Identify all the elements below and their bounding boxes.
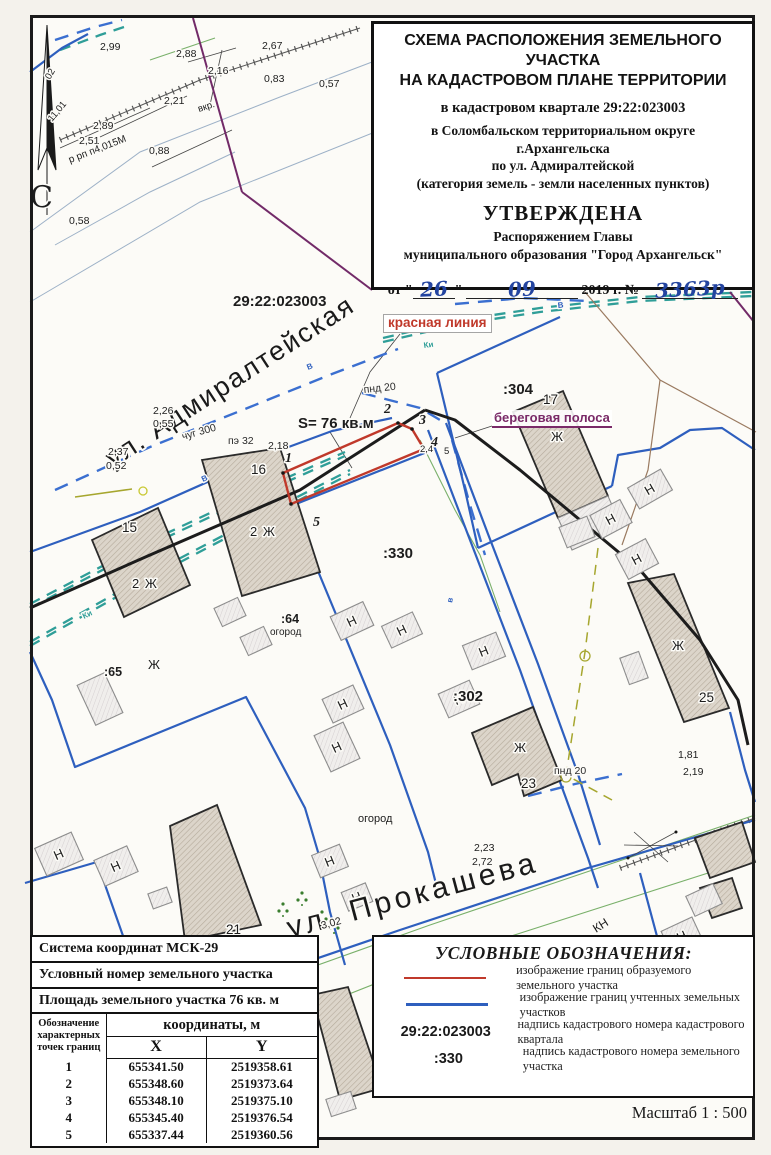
coordinate-cell: 1	[32, 1058, 106, 1075]
coordinate-cell: 5	[32, 1126, 106, 1143]
legend-title: УСЛОВНЫЕ ОБОЗНАЧЕНИЯ:	[374, 943, 753, 964]
coordinate-cell: 3	[32, 1092, 106, 1109]
map-label: 29:22:023003	[233, 293, 326, 310]
map-label: 2,21	[164, 95, 185, 107]
date-month-handwritten: 09	[508, 279, 537, 300]
map-label: 2,19	[683, 766, 704, 778]
map-label: С	[30, 180, 53, 215]
order-number-handwritten: 3363р	[655, 277, 726, 301]
city-line: г.Архангельска	[374, 140, 752, 158]
date-day-underline: 26	[413, 277, 455, 299]
date-quote: "	[455, 283, 463, 298]
map-label: :64	[281, 612, 299, 626]
boundary-point-3	[410, 427, 414, 431]
cadastral-scheme-page: НННННННННННННН С29:22:023003ул. Адмиралт…	[0, 0, 771, 1155]
map-label: В	[557, 300, 564, 310]
legend-item: изображение границ образуемого земельног…	[374, 964, 753, 991]
map-label: 2,99	[100, 41, 121, 53]
coords-column-header: координаты, м	[106, 1014, 317, 1036]
legend-items: изображение границ образуемого земельног…	[374, 964, 753, 1072]
map-label: Ж	[514, 740, 527, 755]
map-label: 2,72	[472, 856, 493, 868]
map-label: 15	[122, 520, 137, 535]
coordinate-cell: 2519376.54	[206, 1109, 317, 1126]
map-label: Ж	[148, 657, 161, 672]
map-label: 5	[313, 515, 320, 530]
points-column-header: Обозначение характерных точек границ	[32, 1014, 106, 1058]
map-label: пнд 20	[554, 765, 586, 777]
map-label: 2,23	[474, 842, 495, 854]
date-prefix: от "	[388, 283, 413, 298]
coordinate-row: 2655348.602519373.64	[32, 1075, 317, 1092]
map-label: 2 Ж	[250, 524, 276, 539]
map-label: 17	[543, 392, 558, 407]
coordinate-cell: 655348.60	[106, 1075, 206, 1092]
map-label: 16	[251, 462, 266, 477]
coordinates-table-block: Система координат МСК-29 Условный номер …	[30, 935, 319, 1148]
registered-parcel-line-sample	[406, 1003, 488, 1006]
map-label: огород	[358, 813, 393, 825]
map-label: 2,4	[420, 444, 433, 455]
map-label: Ж	[672, 638, 685, 653]
coordinate-row: 1655341.502519358.61	[32, 1058, 317, 1075]
map-label: S= 76 кв.м	[298, 415, 374, 432]
map-label: 0,58	[69, 215, 90, 227]
street-line: по ул. Адмиралтейской	[374, 157, 752, 175]
date-month-underline: 09	[466, 277, 578, 299]
map-label: 2,18	[268, 440, 289, 452]
date-day-handwritten: 26	[419, 279, 448, 300]
order-lines: Распоряжением Главы муниципального образ…	[374, 228, 752, 263]
order-line-2: муниципального образования "Город Арханг…	[374, 246, 752, 264]
land-category-line: (категория земель - земли населенных пун…	[374, 175, 752, 193]
coordinate-cell: 2519373.64	[206, 1075, 317, 1092]
cadastral-quarter-line: в кадастровом квартале 29:22:023003	[374, 100, 752, 117]
map-label: огород	[270, 627, 301, 638]
shore-strip-callout: береговая полоса	[492, 410, 612, 428]
conditional-number-row: Условный номер земельного участка	[32, 963, 317, 989]
map-label: 0,57	[319, 78, 340, 90]
y-column-header: Y	[206, 1036, 317, 1058]
title-line-2: НА КАДАСТРОВОМ ПЛАНЕ ТЕРРИТОРИИ	[374, 71, 752, 91]
map-label: 3	[418, 413, 426, 428]
legend-item-text: надпись кадастрового номера кадастрового…	[517, 1017, 753, 1047]
map-label: 1,81	[678, 749, 699, 761]
coordinate-cell: 655341.50	[106, 1058, 206, 1075]
boundary-point-5	[289, 502, 293, 506]
map-label: 0,52	[106, 460, 127, 472]
map-label: 0,83	[264, 73, 285, 85]
coordinate-cell: 2	[32, 1075, 106, 1092]
coordinate-cell: 2519360.56	[206, 1126, 317, 1143]
map-label: 2,37	[108, 446, 129, 458]
coordinates-table: Обозначение характерных точек границ коо…	[32, 1014, 317, 1143]
map-label: :302	[453, 688, 483, 705]
map-label: 0,55	[153, 418, 174, 430]
legend-sample	[374, 1003, 520, 1006]
scale-label: Масштаб 1 : 500	[555, 1103, 747, 1123]
map-label: :330	[383, 545, 413, 562]
map-label: 0,88	[149, 145, 170, 157]
boundary-point-1	[281, 471, 285, 475]
map-label: 2,26	[153, 405, 174, 417]
legend-sample	[374, 977, 516, 979]
legend-block: УСЛОВНЫЕ ОБОЗНАЧЕНИЯ: изображение границ…	[372, 935, 755, 1098]
legend-sample: :330	[374, 1051, 523, 1067]
coordinate-row: 5655337.442519360.56	[32, 1126, 317, 1143]
order-line-1: Распоряжением Главы	[374, 228, 752, 246]
coordinate-cell: 655337.44	[106, 1126, 206, 1143]
legend-item-text: изображение границ учтенных земельных уч…	[520, 990, 753, 1020]
map-label: 5	[444, 446, 449, 457]
area-row: Площадь земельного участка 76 кв. м	[32, 989, 317, 1015]
title-block: СХЕМА РАСПОЛОЖЕНИЯ ЗЕМЕЛЬНОГО УЧАСТКА НА…	[371, 21, 755, 290]
legend-item-text: надпись кадастрового номера земельного у…	[523, 1044, 753, 1074]
map-label: :65	[104, 665, 122, 679]
map-label: Ки	[423, 340, 434, 350]
coordinate-cell: 4	[32, 1109, 106, 1126]
legend-item-text: изображение границ образуемого земельног…	[516, 963, 753, 993]
map-label: 23	[521, 776, 536, 791]
approved-heading: УТВЕРЖДЕНА	[374, 201, 752, 226]
coordinate-cell: 2519358.61	[206, 1058, 317, 1075]
map-label: :304	[503, 381, 534, 398]
coordinate-cell: 2519375.10	[206, 1092, 317, 1109]
district-line: в Соломбальском территориальном округе	[374, 122, 752, 140]
date-number-underline: 3363р	[642, 277, 738, 299]
coordinate-cell: 655345.40	[106, 1109, 206, 1126]
map-label: 2,16	[208, 65, 229, 77]
map-label: 2,89	[93, 120, 114, 132]
title-line-1: СХЕМА РАСПОЛОЖЕНИЯ ЗЕМЕЛЬНОГО УЧАСТКА	[374, 31, 752, 71]
coordinate-cell: 655348.10	[106, 1092, 206, 1109]
coordinate-row: 4655345.402519376.54	[32, 1109, 317, 1126]
legend-sample: 29:22:023003	[374, 1024, 517, 1040]
red-line-callout: красная линия	[383, 314, 492, 333]
boundary-point-2	[396, 421, 400, 425]
location-lines: в Соломбальском территориальном округе г…	[374, 122, 752, 192]
map-label: 2 Ж	[132, 576, 158, 591]
coordinates-rows: 1655341.502519358.612655348.602519373.64…	[32, 1058, 317, 1143]
date-year: 2019 г. №	[581, 283, 638, 298]
legend-item: изображение границ учтенных земельных уч…	[374, 991, 753, 1018]
legend-item: 29:22:023003надпись кадастрового номера …	[374, 1018, 753, 1045]
approval-date-line: от "26" 09 2019 г. № 3363р	[374, 277, 752, 299]
map-label: пэ 32	[228, 435, 254, 447]
formed-parcel-line-sample	[404, 977, 486, 979]
x-column-header: X	[106, 1036, 206, 1058]
map-label: Ж	[551, 429, 564, 444]
map-label: 2	[383, 402, 391, 417]
map-label: 25	[699, 690, 714, 705]
legend-item: :330надпись кадастрового номера земельно…	[374, 1045, 753, 1072]
map-label: 2,67	[262, 40, 283, 52]
map-label: 1	[285, 451, 292, 466]
document-title: СХЕМА РАСПОЛОЖЕНИЯ ЗЕМЕЛЬНОГО УЧАСТКА НА…	[374, 31, 752, 91]
map-label: 2,88	[176, 48, 197, 60]
coordinate-system-row: Система координат МСК-29	[32, 937, 317, 963]
coordinate-row: 3655348.102519375.10	[32, 1092, 317, 1109]
